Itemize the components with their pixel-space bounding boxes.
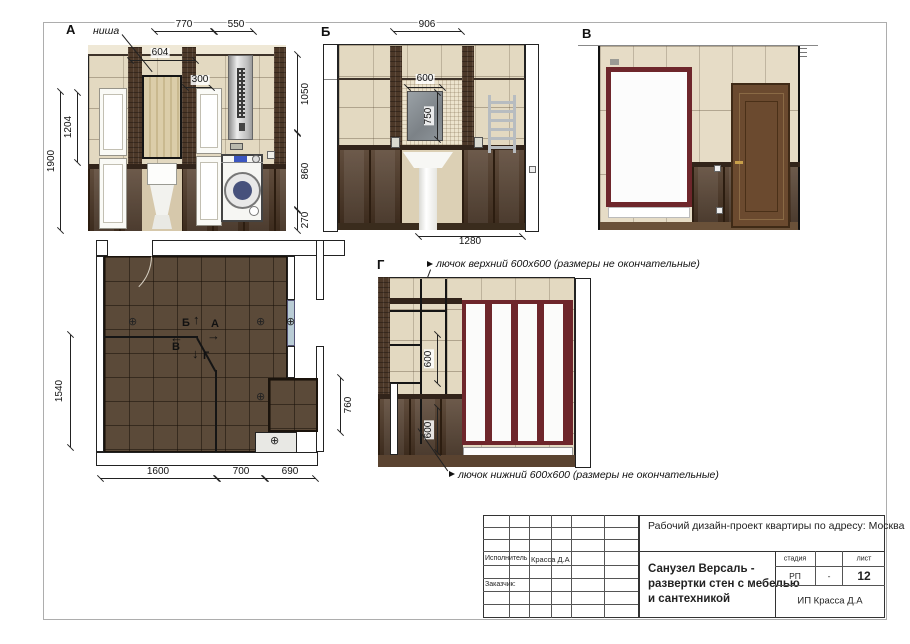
- dim-label: 1204: [64, 115, 74, 139]
- title-block-line: [604, 515, 605, 618]
- stage-label: стадия: [784, 556, 806, 563]
- dim-line: [437, 93, 438, 139]
- panel-base: [608, 207, 690, 218]
- socket: [391, 137, 400, 148]
- ceiling-light-icon: ⊕: [128, 317, 137, 328]
- dim-label: 300: [191, 75, 210, 85]
- niche-annotation: ниша: [93, 25, 119, 37]
- hatch-bottom-annotation: лючок нижний 600х600 (размеры не окончат…: [458, 469, 719, 481]
- elevation-b-side-wall: [525, 44, 539, 232]
- title-block-line: [842, 551, 843, 585]
- door-panel-outline: [745, 101, 778, 212]
- socket: [474, 137, 483, 148]
- sheet-label: лист: [857, 556, 872, 563]
- elevation-a-niche: [142, 75, 182, 159]
- dim-label: 700: [232, 467, 251, 477]
- plan-wall: [287, 346, 295, 378]
- elevation-b-mosaic-strip: [390, 46, 402, 145]
- door-handle: [735, 161, 743, 164]
- level-mark: [800, 56, 807, 57]
- title-block-line: [551, 515, 552, 618]
- dim-line: [214, 31, 254, 32]
- dim-label: 770: [175, 20, 194, 30]
- socket-double: [230, 143, 243, 150]
- dim-label: 600: [416, 74, 435, 84]
- socket: [716, 207, 723, 214]
- title-block-line: [509, 515, 510, 618]
- dim-line: [217, 478, 265, 479]
- section-arrow-up-icon: ↑: [193, 313, 200, 326]
- socket: [714, 165, 721, 172]
- elevation-b-side-wall: [323, 44, 338, 232]
- project-header: Рабочий дизайн-проект квартиры по адресу…: [648, 520, 904, 532]
- elevation-g-floor-strip: [378, 455, 575, 467]
- dim-label: 860: [301, 162, 311, 181]
- elevation-g-border-strip: [390, 298, 462, 304]
- dim-line: [60, 92, 61, 230]
- section-marker-g: Г: [203, 350, 209, 362]
- sheet-number: 12: [857, 569, 870, 583]
- title-block-line: [483, 565, 638, 566]
- dim-label: 690: [281, 467, 300, 477]
- sink-pedestal: [419, 168, 437, 230]
- washing-machine-porthole: [233, 181, 252, 200]
- towel-rail: [488, 95, 516, 153]
- drawing-sheet: А ниша 770 550 604 300 1900 1204 1050 86…: [0, 0, 910, 644]
- elevation-a-mosaic-strip: [182, 47, 196, 164]
- dim-label: 1540: [55, 379, 65, 403]
- elevation-a-cabinet-door: [196, 88, 222, 154]
- dim-line: [340, 378, 341, 432]
- elevation-a-mosaic-strip: [128, 47, 142, 164]
- dim-line: [265, 478, 316, 479]
- dim-line: [154, 31, 214, 32]
- title-block-line: [638, 551, 885, 552]
- water-heater-control: [239, 123, 245, 131]
- water-heater-grille: [237, 68, 245, 118]
- hatch-top-annotation: лючок верхний 600х600 (размеры не оконча…: [436, 258, 700, 270]
- section-marker-v: В: [172, 341, 180, 353]
- dim-line: [437, 335, 438, 383]
- elevation-a-cabinet-door: [99, 158, 127, 229]
- elevation-a-label: А: [66, 22, 75, 37]
- dim-line: [393, 31, 462, 32]
- framed-panel: [606, 67, 692, 207]
- dim-label: 1600: [146, 467, 170, 477]
- dim-label: 906: [418, 20, 437, 30]
- ceiling-light-icon: ⊕: [256, 317, 265, 328]
- elevation-a-cabinet-door: [196, 156, 222, 226]
- title-block-line: [483, 527, 638, 528]
- washing-machine-dial: [252, 155, 260, 163]
- section-marker-b: Б: [182, 317, 190, 329]
- dim-line: [407, 87, 443, 88]
- dim-label: 600: [424, 421, 434, 440]
- dim-line: [70, 335, 71, 447]
- section-arrow-down-icon: ↓: [192, 347, 199, 360]
- title-block-line: [483, 551, 638, 552]
- annotation-arrow-icon: [427, 261, 433, 267]
- elevation-g-label: Г: [377, 257, 384, 272]
- title-block-line: [775, 566, 885, 567]
- dim-label: 750: [424, 107, 434, 126]
- dim-label: 550: [227, 20, 246, 30]
- executor-label: Исполнитель: [485, 555, 527, 562]
- dim-line: [297, 55, 298, 133]
- elevation-b-side-line: [324, 79, 337, 80]
- title-block-line: [638, 515, 640, 618]
- company-name: ИП Красса Д.А: [797, 596, 862, 607]
- ceiling-light-icon: ⊕: [286, 317, 295, 328]
- stage-value: РП: [789, 571, 801, 581]
- title-block-line: [775, 585, 885, 586]
- dim-label: 760: [344, 396, 354, 415]
- dim-line: [297, 210, 298, 230]
- executor-value: Красса Д.А: [531, 555, 570, 564]
- elevation-v-label: В: [582, 26, 591, 41]
- hatch-frame-line: [390, 344, 421, 346]
- dim-label: 604: [151, 48, 170, 58]
- ceiling-light-icon: ⊕: [256, 392, 265, 403]
- title-block-line: [483, 539, 638, 540]
- ceiling-light-icon: ⊕: [270, 436, 279, 447]
- dim-line: [100, 478, 217, 479]
- elevation-b-mosaic-strip: [462, 46, 474, 145]
- shower-screen: [462, 300, 573, 445]
- client-label: Заказчик:: [485, 581, 516, 588]
- wall-switch: [529, 166, 536, 173]
- plan-wall: [316, 240, 324, 300]
- section-arrow-right-icon: →: [207, 329, 220, 342]
- dim-label: 1280: [458, 237, 482, 247]
- level-mark: [800, 52, 807, 53]
- toilet-tank: [147, 163, 177, 185]
- elevation-b-label: Б: [321, 24, 330, 39]
- title-block-line: [483, 578, 638, 579]
- dim-line: [185, 87, 212, 88]
- hatch-frame-line: [420, 399, 422, 444]
- dim-label: 1050: [301, 82, 311, 106]
- elevation-g-side-wall: [575, 278, 591, 468]
- wall-switch: [267, 151, 275, 159]
- title-block-line: [483, 591, 638, 592]
- toilet-base: [152, 215, 172, 229]
- stage-dash: -: [828, 571, 831, 581]
- level-mark: [800, 48, 807, 49]
- section-cut-line: [104, 336, 198, 338]
- plan-wall: [287, 256, 295, 300]
- dim-line: [130, 60, 196, 61]
- dim-line: [297, 133, 298, 210]
- plan-shower-tray: [268, 378, 318, 432]
- washing-machine-display: [234, 156, 247, 162]
- annotation-arrow-icon: [449, 471, 455, 477]
- plan-wall: [96, 452, 318, 466]
- vent-box: [610, 59, 619, 65]
- elevation-a-mosaic-strip: [274, 47, 286, 164]
- section-marker-a: А: [211, 318, 219, 330]
- washing-machine-drawer: [249, 206, 259, 216]
- door-edge: [390, 383, 398, 455]
- dim-label: 270: [301, 211, 311, 230]
- dim-line: [77, 93, 78, 162]
- dim-line: [437, 408, 438, 452]
- hatch-frame-line: [390, 310, 446, 312]
- plan-wall: [96, 240, 108, 256]
- title-block-line: [529, 515, 530, 618]
- dim-label: 1900: [47, 149, 57, 173]
- dim-label: 600: [424, 350, 434, 369]
- title-block-line: [483, 604, 638, 605]
- title-block-line: [571, 515, 572, 618]
- elevation-a-cabinet-door: [99, 88, 127, 156]
- plan-wall: [96, 256, 104, 452]
- section-cut-line: [215, 370, 217, 452]
- title-block-line: [815, 551, 816, 585]
